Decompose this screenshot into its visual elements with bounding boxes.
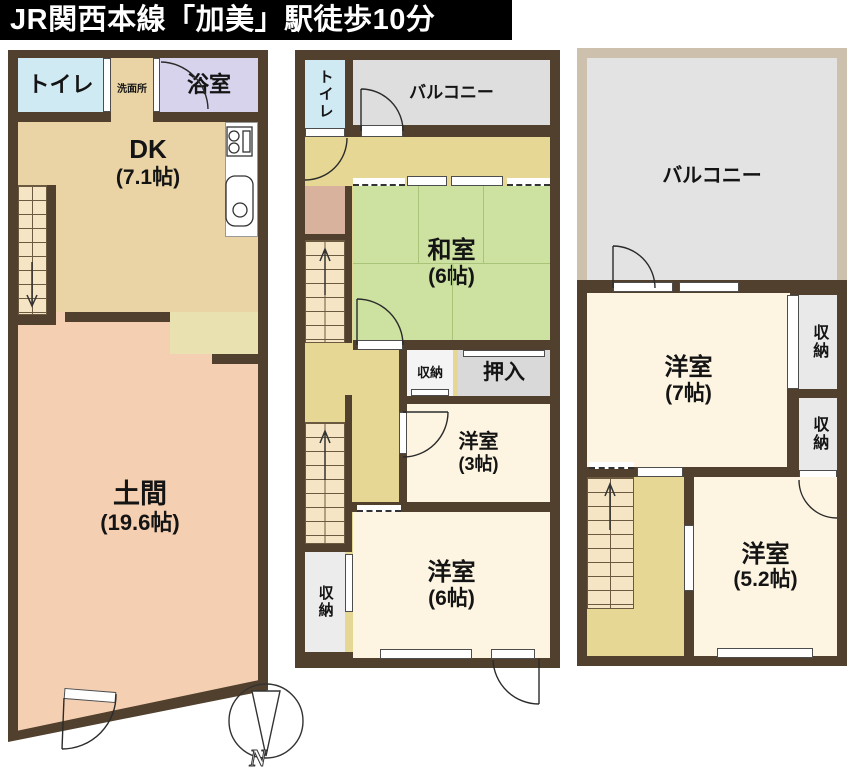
plan-annotations-svg: N [0, 0, 854, 768]
stove-burner-icon [229, 131, 239, 141]
stove-grill-icon [243, 131, 250, 152]
door-arc-washitsu [357, 299, 403, 345]
stair-arrow-down-1f [27, 262, 37, 306]
door-arc-exterior-2f [493, 659, 539, 704]
door-arc-balcony-3f [613, 246, 655, 288]
stair-arrow-up-3f [605, 484, 615, 530]
floor-plan-canvas: JR関西本線「加美」駅徒歩10分 トイレ 洗面所 浴室 DK (7.1帖) 土間 [0, 0, 854, 768]
door-arc-toilet-2f [305, 138, 347, 180]
door-arc-storage-3f [799, 480, 837, 518]
sink-drain-icon [233, 203, 247, 217]
sink-icon [226, 176, 253, 226]
door-arc-western3 [403, 412, 448, 457]
compass: N [229, 684, 303, 768]
stair-arrow-up-2f-lower [320, 431, 330, 480]
stair-arrow-up-2f [320, 249, 330, 295]
door-arc-entrance [62, 694, 116, 749]
door-arc-bath [161, 62, 208, 109]
door-arc-balcony-2f [361, 89, 403, 131]
compass-north-label: N [248, 746, 268, 768]
stove-burner-icon [229, 143, 239, 153]
